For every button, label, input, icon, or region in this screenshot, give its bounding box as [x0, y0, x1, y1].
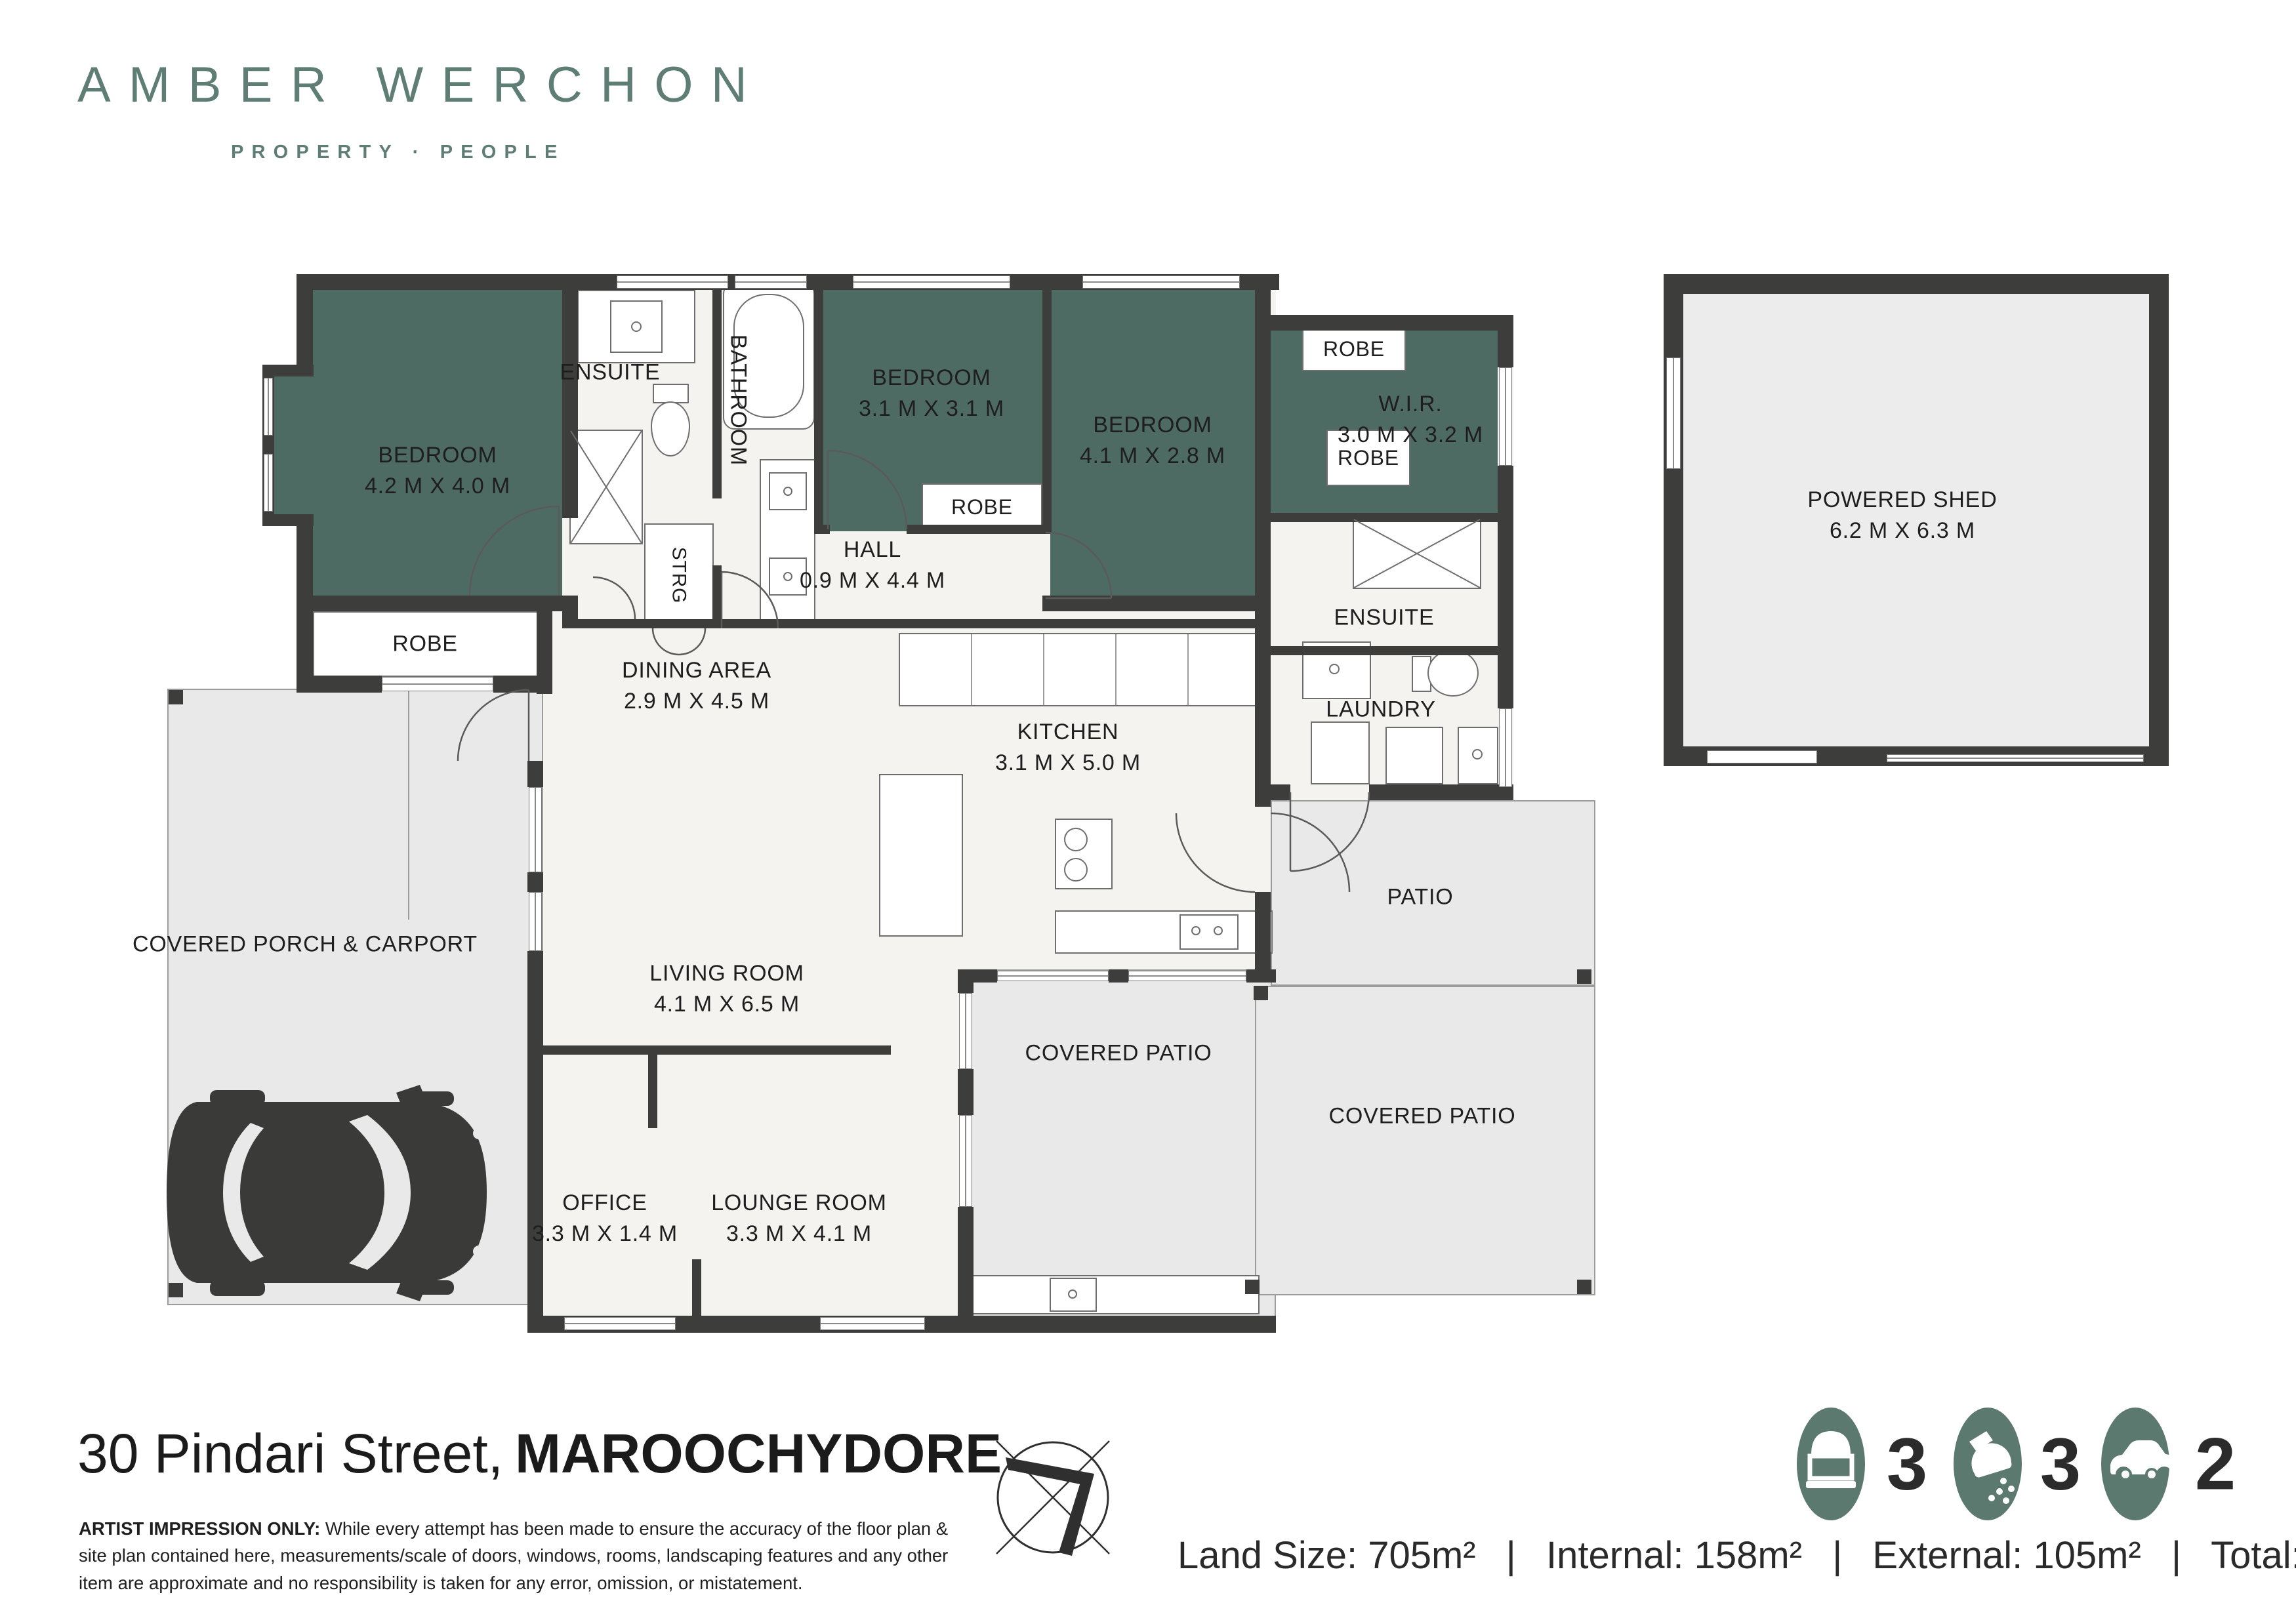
room-label-robe-1: ROBE — [392, 629, 458, 660]
room-label-dining: DINING AREA2.9 M X 4.5 M — [622, 655, 771, 717]
stat-value: 705m² — [1368, 1534, 1475, 1577]
room-label-kitchen: KITCHEN3.1 M X 5.0 M — [995, 717, 1141, 779]
stat-label: Land Size: — [1178, 1534, 1357, 1577]
room-label-hall: HALL0.9 M X 4.4 M — [800, 535, 945, 596]
room-label-bathroom: BATHROOM — [723, 335, 754, 466]
room-label-living: LIVING ROOM4.1 M X 6.5 M — [649, 958, 804, 1020]
disclaimer: ARTIST IMPRESSION ONLY: While every atte… — [79, 1515, 951, 1596]
room-label-robe-4: ROBE — [1338, 443, 1399, 472]
room-label-bedroom-1: BEDROOM4.2 M X 4.0 M — [365, 440, 510, 502]
stats-bar: Land Size: 705m² | Internal: 158m² | Ext… — [1178, 1533, 2296, 1577]
area-label-porch-carport: COVERED PORCH & CARPORT — [133, 929, 478, 960]
stat-label: Total: — [2211, 1534, 2296, 1577]
door-arcs — [458, 451, 1369, 892]
room-label-office: OFFICE3.3 M X 1.4 M — [532, 1188, 678, 1249]
stat-value: 105m² — [2033, 1534, 2141, 1577]
car-icon — [2101, 1408, 2169, 1520]
room-label-storage: STRG — [665, 547, 692, 604]
stat-separator: | — [2171, 1534, 2181, 1577]
bed-icon — [1797, 1408, 1865, 1520]
compass-icon — [996, 1441, 1109, 1556]
room-label-bedroom-2: BEDROOM3.1 M X 3.1 M — [859, 363, 1004, 424]
room-label-ensuite-2: ENSUITE — [1334, 603, 1435, 634]
room-label-lounge: LOUNGE ROOM3.3 M X 4.1 M — [711, 1188, 887, 1249]
room-label-robe-2: ROBE — [951, 493, 1013, 521]
room-label-shed: POWERED SHED6.2 M X 6.3 M — [1807, 485, 1997, 546]
stat-value: 158m² — [1694, 1534, 1802, 1577]
bath-count: 3 — [2040, 1422, 2081, 1507]
address-street: 30 Pindari Street, — [77, 1423, 503, 1484]
room-label-laundry: LAUNDRY — [1326, 695, 1435, 725]
car-count: 2 — [2195, 1422, 2236, 1507]
address-suburb: MAROOCHYDORE — [515, 1423, 1002, 1484]
area-label-patio: PATIO — [1387, 882, 1454, 913]
stat-label: External: — [1872, 1534, 2022, 1577]
shower-icon — [1954, 1408, 2022, 1520]
bed-count: 3 — [1887, 1422, 1927, 1507]
stat-label: Internal: — [1546, 1534, 1684, 1577]
stat-separator: | — [1832, 1534, 1842, 1577]
floor-plan-page: AMBER WERCHON PROPERTY · PEOPLE — [0, 0, 2296, 1622]
room-label-ensuite-1: ENSUITE — [560, 357, 661, 388]
room-label-robe-3: ROBE — [1323, 335, 1385, 363]
room-label-bedroom-3: BEDROOM4.1 M X 2.8 M — [1080, 410, 1225, 472]
property-address: 30 Pindari Street,MAROOCHYDORE — [77, 1422, 1002, 1486]
plan-linework — [0, 0, 2296, 1622]
stat-separator: | — [1506, 1534, 1516, 1577]
room-label-wir: W.I.R.3.0 M X 3.2 M — [1338, 389, 1483, 451]
car-top-icon — [167, 1085, 487, 1301]
area-label-covered-patio-mid: COVERED PATIO — [1025, 1038, 1212, 1069]
disclaimer-label: ARTIST IMPRESSION ONLY: — [79, 1518, 320, 1539]
area-label-covered-patio-right: COVERED PATIO — [1329, 1101, 1516, 1132]
